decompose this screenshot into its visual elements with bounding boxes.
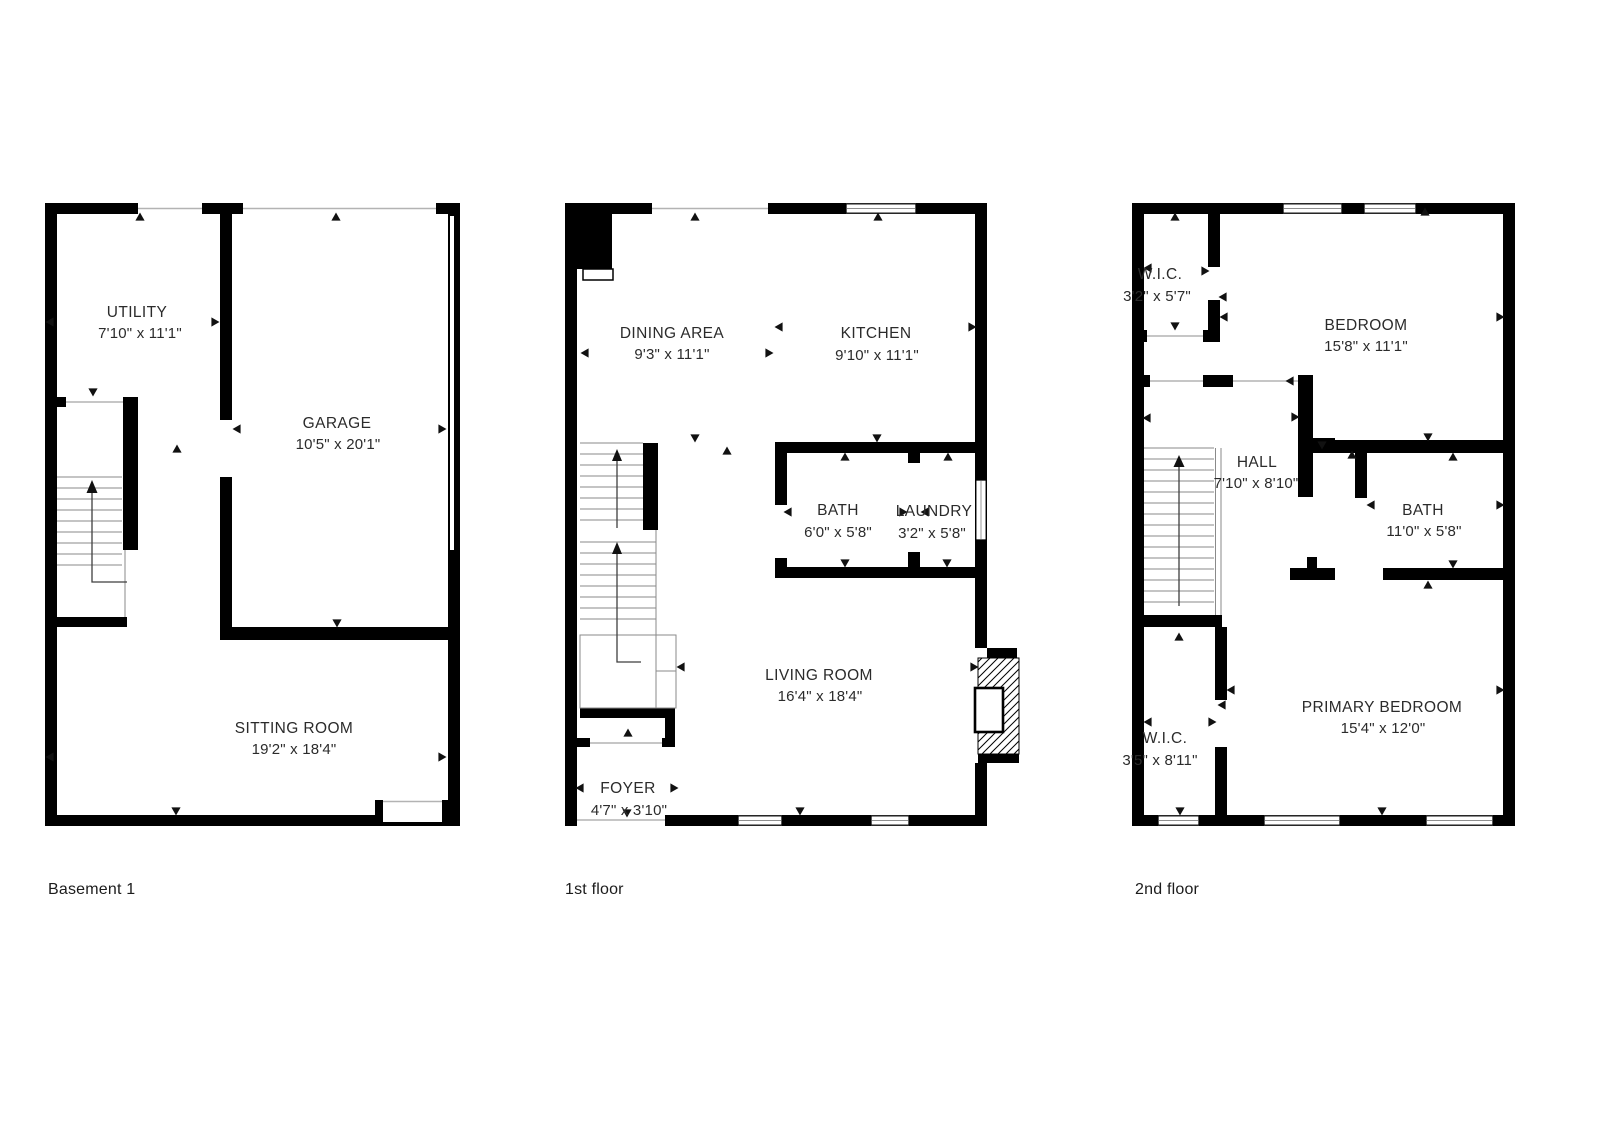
floor-plan-sheet: UTILITY 7'10" x 11'1" GARAGE 10'5" x 20'… [0, 0, 1600, 1130]
room-label-bedroom: BEDROOM [1325, 317, 1408, 334]
caption-second-floor: 2nd floor [1135, 881, 1200, 898]
room-dims-hall: 7'10" x 8'10" [1214, 475, 1299, 492]
room-label-wic-bottom: W.I.C. [1143, 730, 1188, 747]
basement-plan: UTILITY 7'10" x 11'1" GARAGE 10'5" x 20'… [45, 203, 460, 898]
room-dims-garage: 10'5" x 20'1" [296, 436, 381, 453]
room-label-living-room: LIVING ROOM [765, 667, 873, 684]
first-floor-labels: DINING AREA 9'3" x 11'1" KITCHEN 9'10" x… [565, 325, 972, 898]
room-label-laundry: LAUNDRY [896, 503, 973, 520]
room-dims-kitchen: 9'10" x 11'1" [835, 347, 919, 364]
first-floor-stairs [580, 443, 676, 708]
floor-plan-svg: UTILITY 7'10" x 11'1" GARAGE 10'5" x 20'… [0, 0, 1600, 1130]
room-label-kitchen: KITCHEN [841, 325, 912, 342]
room-label-garage: GARAGE [303, 415, 372, 432]
room-label-bath-1f: BATH [817, 502, 859, 519]
second-floor-plan: W.I.C. 3'2" x 5'7" BEDROOM 15'8" x 11'1"… [1122, 203, 1515, 898]
room-dims-laundry: 3'2" x 5'8" [898, 525, 966, 542]
room-dims-bedroom: 15'8" x 11'1" [1324, 338, 1408, 355]
room-label-hall: HALL [1237, 454, 1277, 471]
second-floor-labels: W.I.C. 3'2" x 5'7" BEDROOM 15'8" x 11'1"… [1122, 266, 1462, 898]
room-dims-sitting-room: 19'2" x 18'4" [252, 741, 337, 758]
room-dims-utility: 7'10" x 11'1" [98, 325, 182, 342]
room-label-bath-2f: BATH [1402, 502, 1444, 519]
room-dims-dining-area: 9'3" x 11'1" [634, 346, 709, 363]
chimney-block [565, 203, 612, 269]
room-dims-wic-top: 3'2" x 5'7" [1123, 288, 1191, 305]
room-label-wic-top: W.I.C. [1138, 266, 1183, 283]
basement-labels: UTILITY 7'10" x 11'1" GARAGE 10'5" x 20'… [48, 304, 380, 898]
second-floor-stairs [1144, 448, 1221, 615]
room-dims-bath-2f: 11'0" x 5'8" [1386, 523, 1461, 540]
room-label-utility: UTILITY [107, 304, 168, 321]
basement-stairs [57, 477, 127, 617]
room-label-primary-bedroom: PRIMARY BEDROOM [1302, 699, 1462, 716]
first-floor-plan: DINING AREA 9'3" x 11'1" KITCHEN 9'10" x… [565, 203, 1019, 898]
room-dims-living-room: 16'4" x 18'4" [778, 688, 863, 705]
room-label-sitting-room: SITTING ROOM [235, 720, 353, 737]
room-dims-wic-bottom: 3'5" x 8'11" [1122, 752, 1197, 769]
room-label-dining-area: DINING AREA [620, 325, 725, 342]
room-dims-bath-1f: 6'0" x 5'8" [804, 524, 872, 541]
second-floor-door-markers [1143, 208, 1505, 816]
caption-basement: Basement 1 [48, 881, 135, 898]
room-label-foyer: FOYER [600, 780, 655, 797]
fireplace [975, 648, 1019, 763]
room-dims-foyer: 4'7" x 3'10" [591, 802, 667, 819]
caption-first-floor: 1st floor [565, 881, 624, 898]
room-dims-primary-bedroom: 15'4" x 12'0" [1341, 720, 1426, 737]
